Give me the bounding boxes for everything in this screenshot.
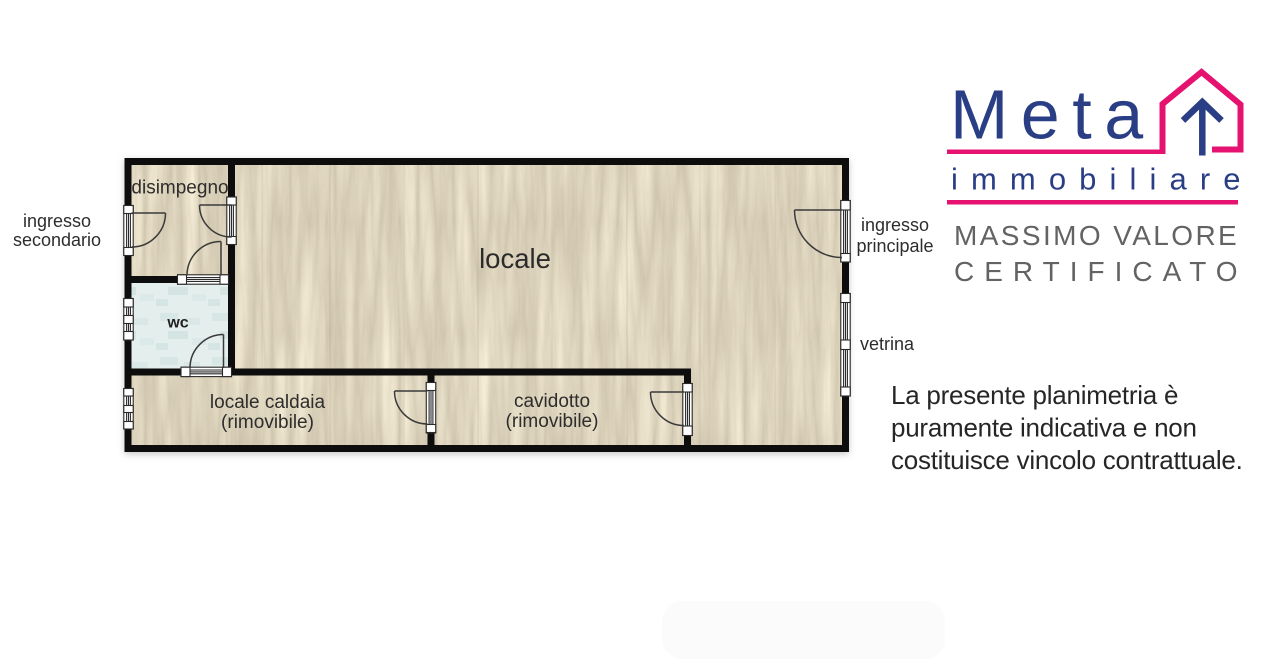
svg-text:La presente planimetria è: La presente planimetria è [891, 380, 1178, 410]
svg-text:Meta: Meta [950, 76, 1156, 154]
svg-text:locale caldaia: locale caldaia [210, 392, 326, 413]
svg-text:CERTIFICATO: CERTIFICATO [954, 256, 1248, 287]
svg-text:(rimovibile): (rimovibile) [221, 412, 314, 433]
svg-text:MASSIMO VALORE: MASSIMO VALORE [954, 220, 1239, 251]
svg-text:principale: principale [856, 236, 933, 256]
svg-text:locale: locale [479, 243, 551, 274]
svg-text:secondario: secondario [13, 230, 101, 250]
svg-text:(rimovibile): (rimovibile) [506, 411, 599, 432]
svg-text:puramente indicativa e non: puramente indicativa e non [891, 413, 1197, 443]
svg-text:immobiliare: immobiliare [951, 162, 1254, 197]
svg-text:ingresso: ingresso [23, 211, 91, 231]
svg-text:wc: wc [166, 315, 188, 332]
svg-text:ingresso: ingresso [861, 215, 929, 235]
svg-text:cavidotto: cavidotto [514, 391, 590, 412]
svg-text:costituisce vincolo contrattua: costituisce vincolo contrattuale. [891, 445, 1243, 475]
svg-text:vetrina: vetrina [860, 334, 915, 354]
svg-text:disimpegno: disimpegno [131, 178, 228, 199]
